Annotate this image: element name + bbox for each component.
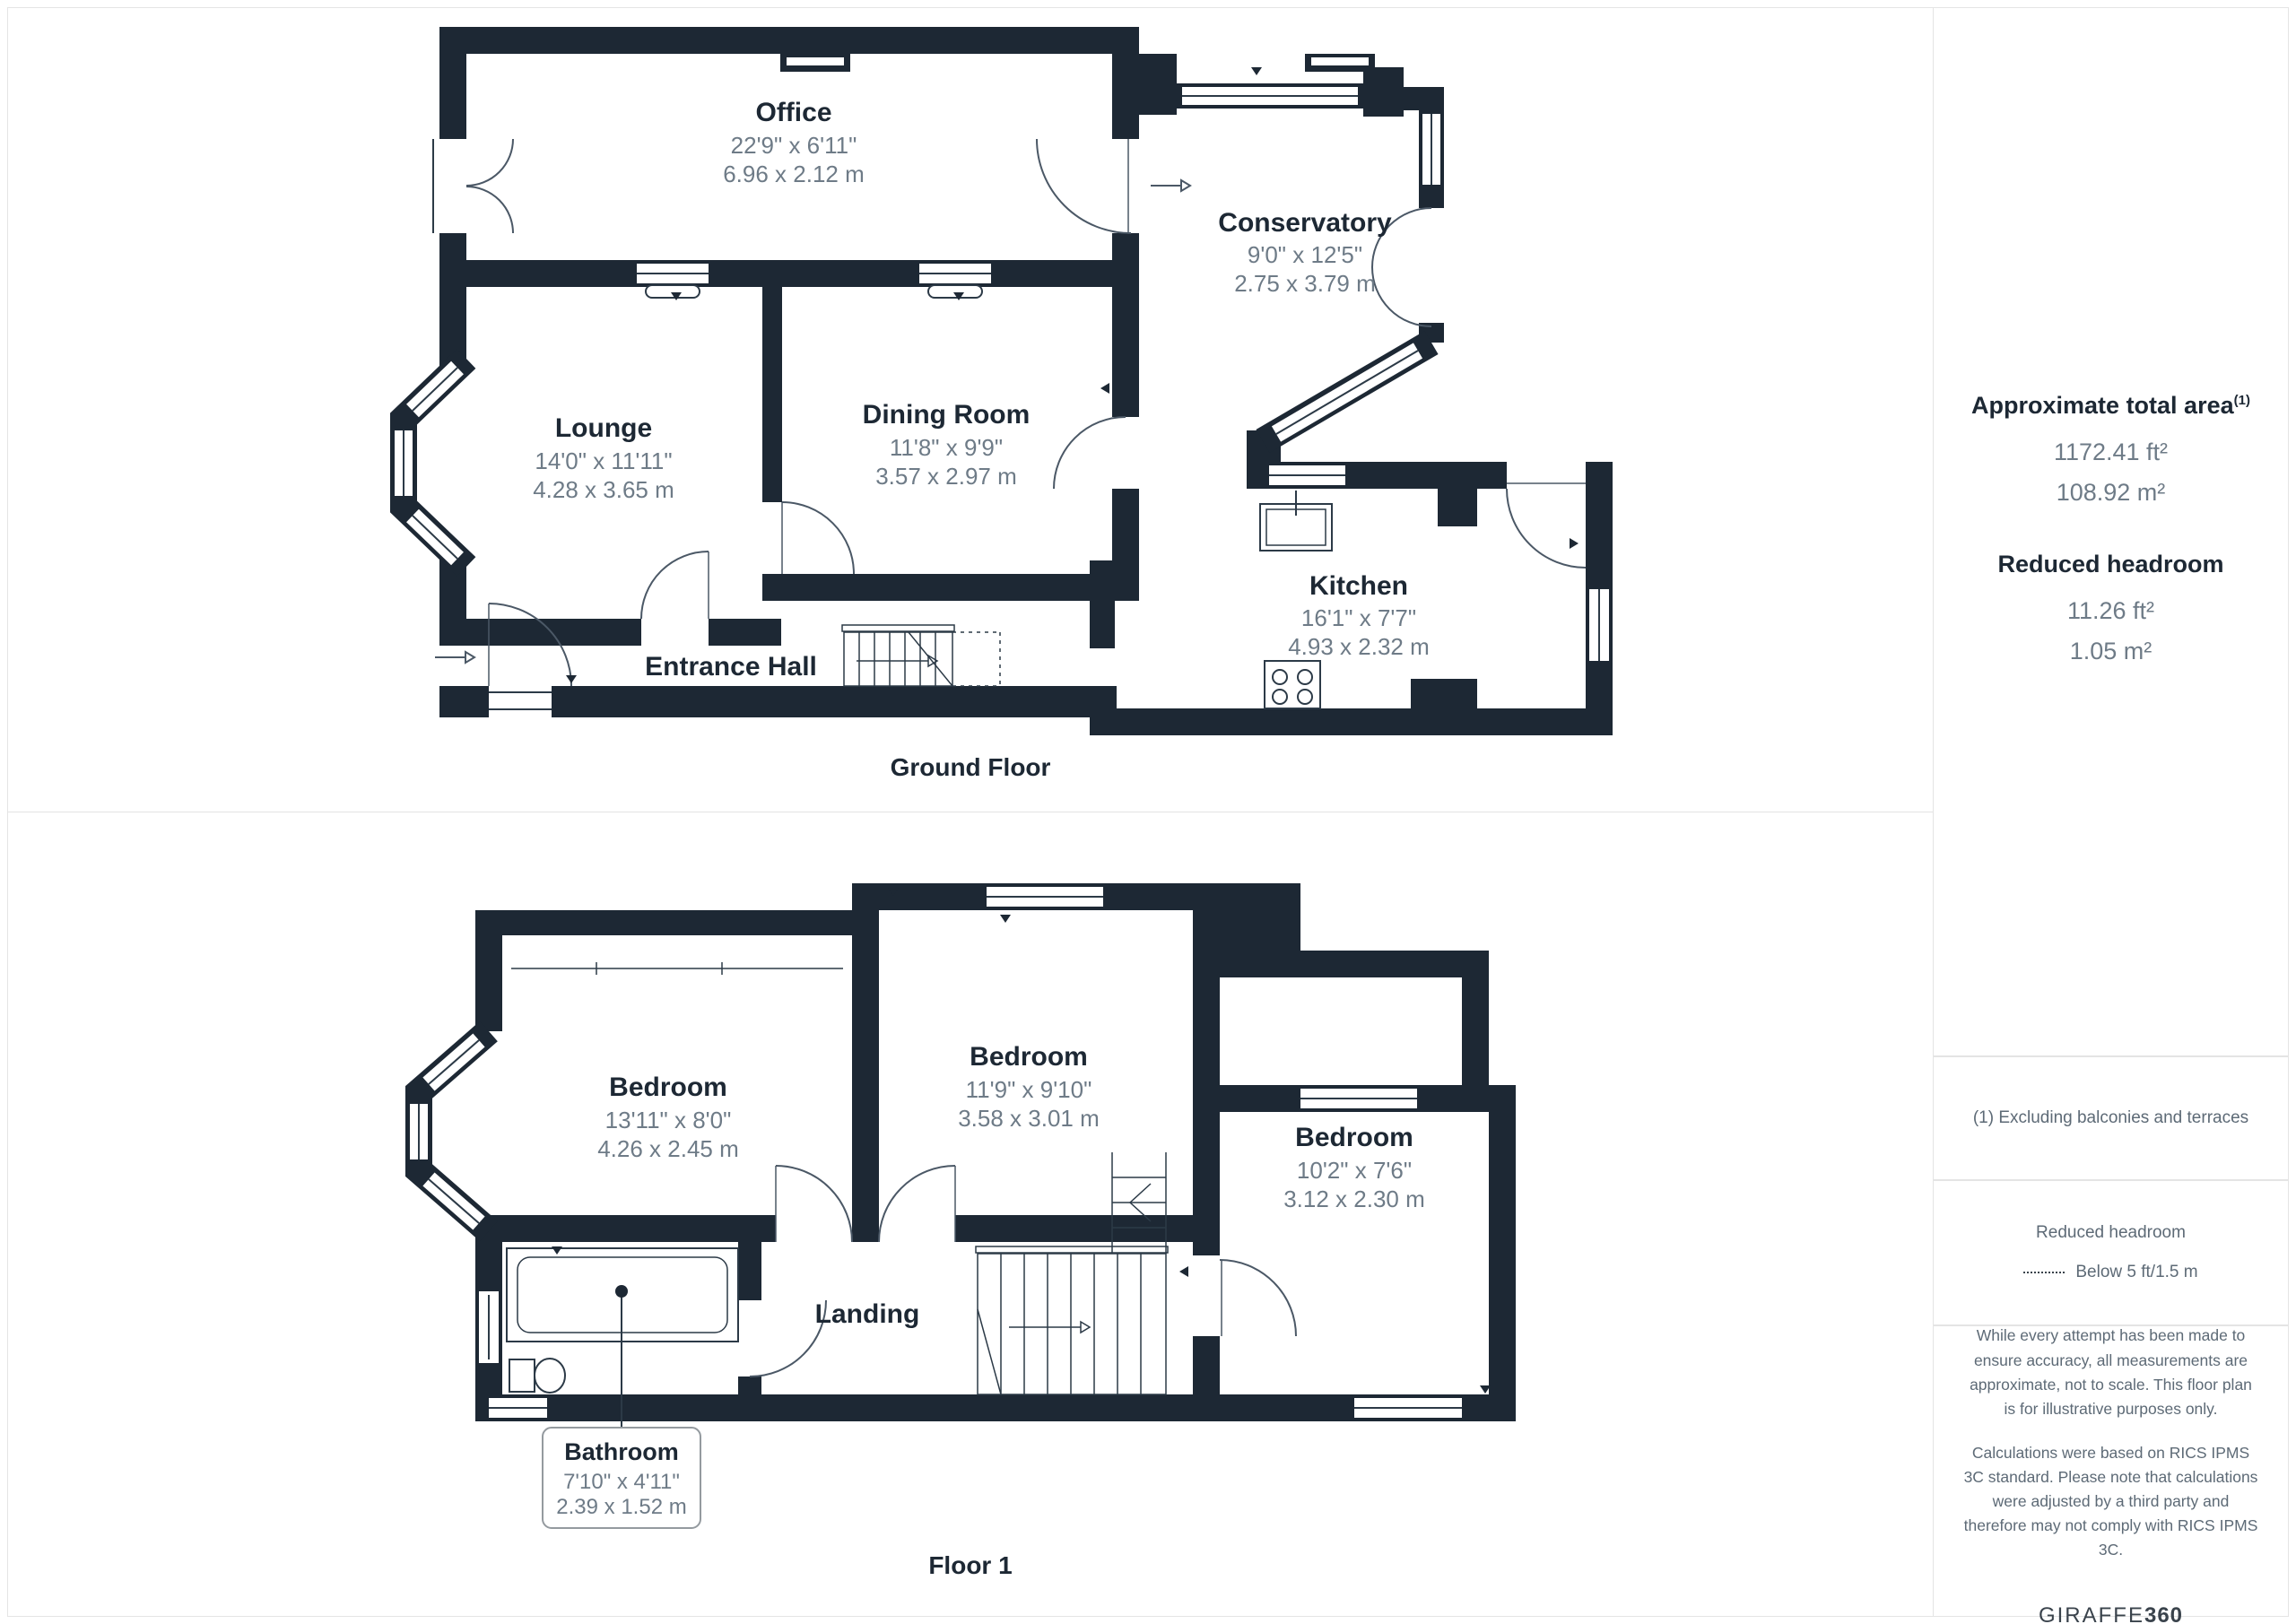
room-dim-lounge-imperial: 14'0" x 11'11" [535,447,672,474]
room-dim-bedroom3-imperial: 10'2" x 7'6" [1297,1157,1412,1184]
total-area-superscript: (1) [2234,393,2250,408]
ground-floor-caption: Ground Floor [7,753,1934,782]
room-dim-conservatory-metric: 2.75 x 3.79 m [1234,270,1376,297]
reduced-headroom-imperial: 11.26 ft² [2067,597,2154,625]
brand-suffix: 360 [2144,1603,2183,1624]
bedroom1-wardrobe [511,962,843,975]
room-label-bedroom1: Bedroom [609,1073,727,1102]
staircase-first [976,1152,1168,1394]
sidebar-disclaimer-section: While every attempt has been made to ens… [1933,1325,2289,1617]
room-label-bedroom2: Bedroom [970,1042,1088,1072]
sidebar-area-section: Approximate total area(1) 1172.41 ft² 10… [1933,7,2289,1056]
reduced-headroom-title: Reduced headroom [1997,551,2223,578]
ground-floor-windows [433,57,1609,709]
conservatory-glass-wall [1263,343,1431,441]
brand-name: GIRAFFE [2039,1603,2144,1624]
room-dim-conservatory-imperial: 9'0" x 12'5" [1248,241,1362,268]
room-label-landing: Landing [815,1299,920,1329]
room-label-bathroom: Bathroom [564,1438,679,1465]
sidebar-legend-section: Reduced headroom Below 5 ft/1.5 m [1933,1180,2289,1325]
legend-title: Reduced headroom [2036,1223,2186,1243]
legend-label: Below 5 ft/1.5 m [2075,1263,2197,1282]
room-dim-kitchen-metric: 4.93 x 2.32 m [1288,633,1430,660]
first-floor-caption: Floor 1 [7,1551,1934,1580]
room-label-dining: Dining Room [863,400,1031,430]
room-dim-dining-imperial: 11'8" x 9'9" [890,434,1003,461]
room-label-kitchen: Kitchen [1309,571,1408,601]
reduced-headroom-metric: 1.05 m² [2070,638,2152,665]
dotted-line-icon [2023,1272,2065,1273]
room-label-lounge: Lounge [555,413,652,443]
staircase-ground [842,625,1000,686]
room-label-conservatory: Conservatory [1218,208,1392,238]
disclaimer-paragraph-1: While every attempt has been made to ens… [1963,1324,2259,1421]
room-dim-bedroom2-imperial: 11'9" x 9'10" [966,1076,1092,1103]
room-dim-bathroom-metric: 2.39 x 1.52 m [556,1495,686,1519]
total-area-metric: 108.92 m² [2057,479,2166,507]
room-dim-bathroom-imperial: 7'10" x 4'11" [563,1470,680,1494]
ground-floor-plan: Office 22'9" x 6'11" 6.96 x 2.12 m Conse… [372,13,1664,767]
first-floor-plan: Bathroom 7'10" x 4'11" 2.39 x 1.52 m Bed… [372,861,1664,1614]
floorplan-page: Office 22'9" x 6'11" 6.96 x 2.12 m Conse… [0,0,2296,1624]
room-label-office: Office [755,98,831,127]
room-dim-bedroom1-metric: 4.26 x 2.45 m [597,1135,739,1162]
radiators [646,285,982,298]
room-dim-bedroom3-metric: 3.12 x 2.30 m [1283,1185,1425,1212]
room-dim-bedroom1-imperial: 13'11" x 8'0" [605,1107,732,1133]
total-area-imperial: 1172.41 ft² [2054,439,2168,466]
room-label-bedroom3: Bedroom [1295,1123,1413,1152]
room-dim-office-imperial: 22'9" x 6'11" [731,132,857,159]
info-sidebar: Approximate total area(1) 1172.41 ft² 10… [1933,7,2289,1617]
disclaimer-paragraph-2: Calculations were based on RICS IPMS 3C … [1963,1441,2259,1563]
room-dim-dining-metric: 3.57 x 2.97 m [875,463,1017,490]
room-dim-bedroom2-metric: 3.58 x 3.01 m [958,1105,1100,1132]
room-dim-kitchen-imperial: 16'1" x 7'7" [1301,604,1416,631]
lounge-bay-window [404,359,466,567]
room-dim-office-metric: 6.96 x 2.12 m [723,161,865,187]
room-label-entrance-hall: Entrance Hall [645,652,817,682]
footnote-text: (1) Excluding balconies and terraces [1973,1108,2248,1128]
bedroom1-bay-window [419,1031,489,1231]
sidebar-footnote-section: (1) Excluding balconies and terraces [1933,1056,2289,1180]
total-area-title: Approximate total area(1) [1971,392,2250,420]
legend-row: Below 5 ft/1.5 m [2023,1263,2197,1282]
room-dim-lounge-metric: 4.28 x 3.65 m [533,476,674,503]
giraffe360-logo: GIRAFFE360 [2039,1603,2183,1624]
